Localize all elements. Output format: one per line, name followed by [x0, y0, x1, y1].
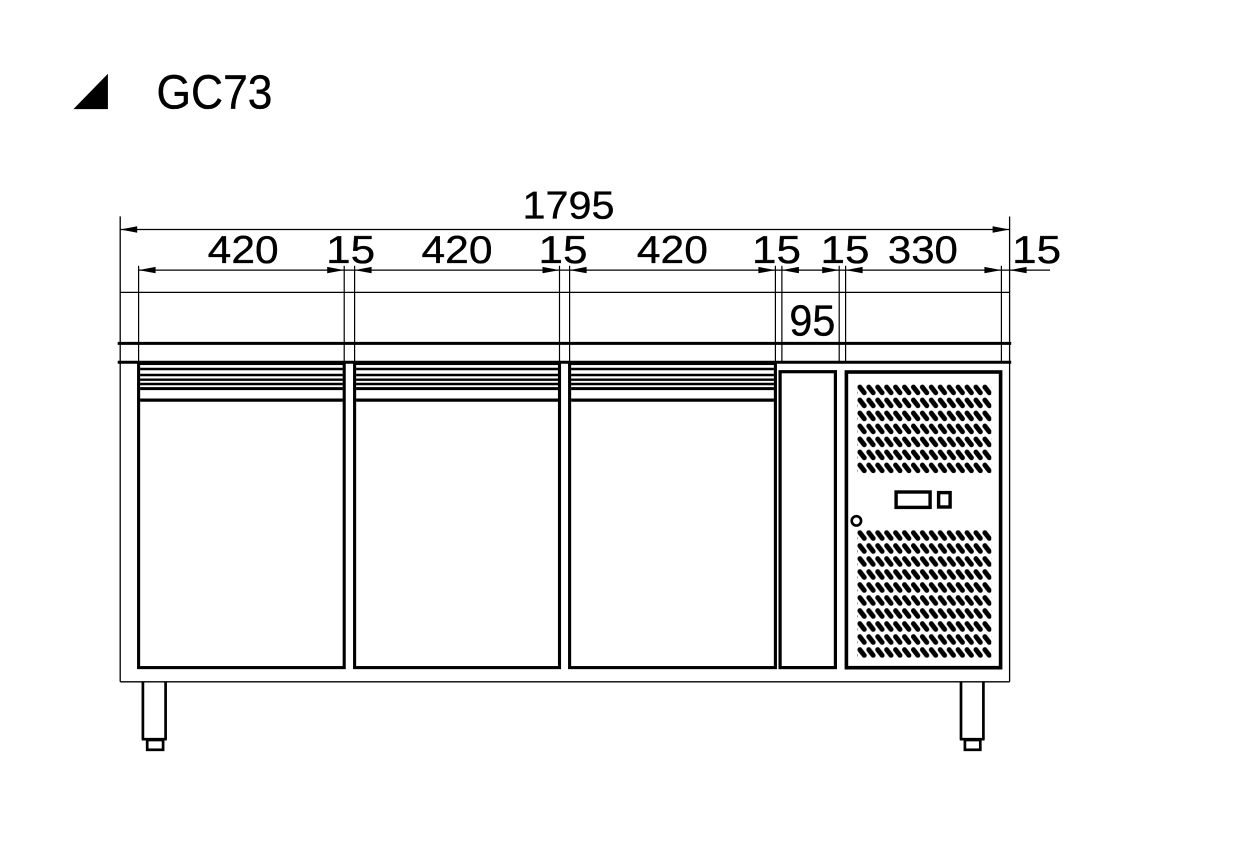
svg-text:15: 15 [539, 229, 588, 272]
svg-text:GC73: GC73 [157, 65, 273, 119]
svg-text:1795: 1795 [523, 185, 615, 228]
svg-text:15: 15 [326, 229, 375, 272]
svg-text:420: 420 [422, 229, 493, 272]
svg-text:15: 15 [821, 229, 870, 272]
svg-text:15: 15 [752, 229, 801, 272]
svg-text:15: 15 [1012, 229, 1061, 272]
svg-text:420: 420 [208, 229, 279, 272]
svg-text:330: 330 [888, 229, 958, 272]
svg-text:420: 420 [637, 229, 708, 272]
svg-text:95: 95 [789, 296, 835, 345]
